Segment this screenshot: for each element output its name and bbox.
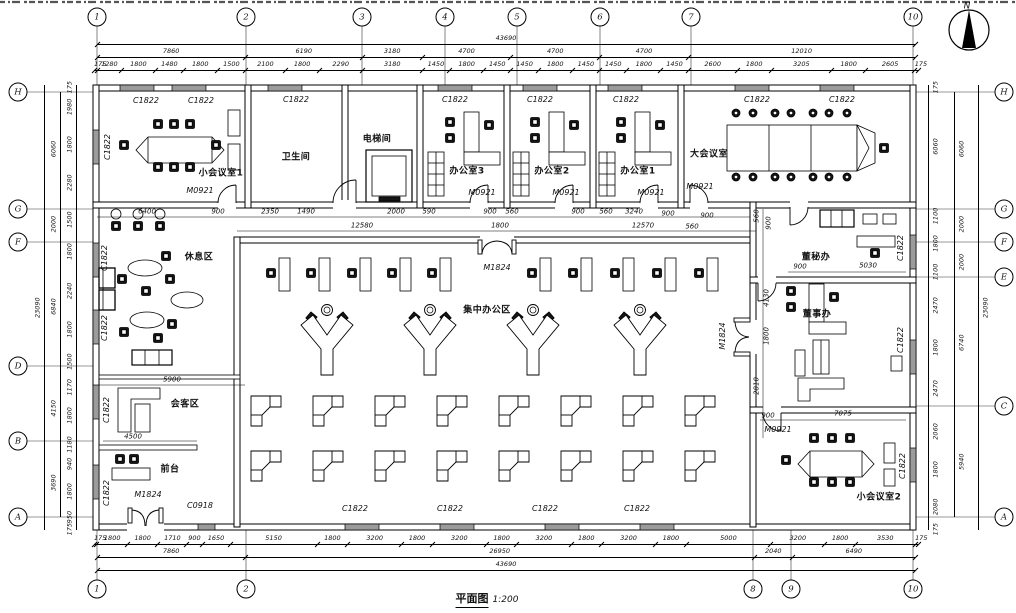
dim-chain-bottom-segments: 78602695020406490 xyxy=(97,547,915,558)
dim-value: 6190 xyxy=(245,47,362,57)
dim-value: 4700 xyxy=(422,47,511,57)
dim-value: 2100 xyxy=(246,60,286,70)
window-label-c1822: C1822 xyxy=(104,134,112,160)
dim-value: 1450 xyxy=(484,60,511,70)
door-label-m1824: M1824 xyxy=(719,322,727,349)
interior-dim: 560 xyxy=(599,209,612,216)
dim-value: 1800 xyxy=(127,534,157,544)
dim-value: 900 xyxy=(187,534,202,544)
dim-chain-bottom-total: 43690 xyxy=(97,560,915,571)
dim-value: 26950 xyxy=(245,547,754,557)
dim-value: 4150 xyxy=(47,370,60,448)
grid-bubble-right-E: E xyxy=(995,268,1014,287)
interior-dim: 4500 xyxy=(124,434,142,441)
dim-value: 43690 xyxy=(97,34,915,44)
grid-bubble-bottom-10: 10 xyxy=(904,580,923,599)
grid-bubble-right-F: F xyxy=(995,233,1014,252)
window-label-c1822: C1822 xyxy=(103,480,111,506)
door-label-m0921: M0921 xyxy=(764,426,791,434)
grid-bubble-bottom-1: 1 xyxy=(88,580,107,599)
dim-value: 1800 xyxy=(656,534,686,544)
dim-value: 1800 xyxy=(63,398,76,433)
interior-dim: 900 xyxy=(700,213,713,220)
dim-value: 6740 xyxy=(955,280,968,406)
dim-value: 2000 xyxy=(47,205,60,242)
window-label-c1822: C1822 xyxy=(899,453,907,479)
grid-bubble-right-A: A xyxy=(995,508,1014,527)
dim-value: 7860 xyxy=(97,547,245,557)
dim-value: 6060 xyxy=(47,92,60,205)
interior-dim: 2350 xyxy=(261,209,279,216)
dim-value: 5150 xyxy=(230,534,317,544)
room-label-meeting1: 小会议室1 xyxy=(199,170,244,179)
dim-value: 1800 xyxy=(317,534,347,544)
dim-value: 1280 xyxy=(97,60,121,70)
dim-chain-left-segments: 60602000684041503690 xyxy=(47,92,61,517)
dim-chain-left-total: 23090 xyxy=(31,85,45,530)
dim-value: 2000 xyxy=(955,243,968,280)
dim-chain-right-segments: 60602000200067405940 xyxy=(954,92,968,517)
window-label-c1822: C1822 xyxy=(133,97,159,105)
floor-plan-canvas: 1 2 3 4 5 6 7 10 1 2 8 9 10 H G F D B A … xyxy=(0,0,1016,613)
dim-value: 3200 xyxy=(517,534,571,544)
room-label-openoffice: 集中办公区 xyxy=(463,307,511,316)
dim-value: 2470 xyxy=(929,365,942,413)
north-arrow-icon xyxy=(949,10,989,50)
dim-value: 4700 xyxy=(600,47,689,57)
dim-value: 12010 xyxy=(688,47,915,57)
dim-value: 175 xyxy=(915,60,918,70)
dim-value: 1800 xyxy=(63,234,76,269)
dim-value: 23090 xyxy=(979,85,992,530)
interior-dim: 560 xyxy=(754,209,761,222)
grid-bubble-left-G: G xyxy=(9,200,28,219)
dim-value: 175 xyxy=(63,527,76,530)
grid-bubble-bottom-2: 2 xyxy=(237,580,256,599)
window-label-c1822: C1822 xyxy=(188,97,214,105)
drawing-title-text: 平面图 xyxy=(456,590,489,608)
door-label-m0921: M0921 xyxy=(552,189,579,197)
dim-value: 2290 xyxy=(319,60,362,70)
dim-value: 1180 xyxy=(63,433,76,456)
dim-value: 1800 xyxy=(929,330,942,365)
interior-dim: 5030 xyxy=(859,263,877,270)
interior-dim: 900 xyxy=(571,209,584,216)
dim-value: 7860 xyxy=(97,47,245,57)
dim-value: 940 xyxy=(63,455,76,473)
dim-value: 2000 xyxy=(955,205,968,242)
dim-value: 1800 xyxy=(571,534,601,544)
dim-value: 1800 xyxy=(285,60,319,70)
dim-value: 23090 xyxy=(31,85,44,530)
grid-bubble-top-3: 3 xyxy=(353,8,372,27)
dim-value: 1650 xyxy=(202,534,230,544)
dim-value: 5940 xyxy=(955,406,968,517)
interior-dim: 1800 xyxy=(491,223,509,230)
dim-value: 1500 xyxy=(63,347,76,376)
door-label-m0921: M0921 xyxy=(186,187,213,195)
grid-bubble-right-C: C xyxy=(995,397,1014,416)
dim-value: 3530 xyxy=(855,534,915,544)
dim-chain-top-segments: 78606190318047004700470012010 xyxy=(97,47,915,58)
dim-chain-right-detail: 1756060110018001100247018002470206018002… xyxy=(928,85,942,530)
window-label-c1822: C1822 xyxy=(342,505,368,513)
dim-value: 3200 xyxy=(602,534,656,544)
dim-value: 1800 xyxy=(183,60,217,70)
dim-value: 1710 xyxy=(158,534,187,544)
dim-value: 1500 xyxy=(217,60,245,70)
door-label-m1824: M1824 xyxy=(483,264,510,272)
window-label-c1822: C1822 xyxy=(101,315,109,341)
dim-value: 175 xyxy=(915,534,918,544)
dim-value: 2040 xyxy=(754,547,793,557)
room-label-rest: 休息区 xyxy=(185,254,214,263)
dim-value: 5000 xyxy=(686,534,771,544)
interior-dim: 590 xyxy=(422,209,435,216)
interior-dim: 900 xyxy=(766,216,773,229)
door-gaps xyxy=(127,200,808,531)
dim-value: 3200 xyxy=(432,534,486,544)
dim-value: 6490 xyxy=(793,547,916,557)
grid-bubble-right-H: H xyxy=(995,83,1014,102)
window-label-c1822: C1822 xyxy=(613,96,639,104)
dim-value: 2600 xyxy=(688,60,737,70)
interior-dim: 900 xyxy=(211,209,224,216)
dim-chain-top-total: 43690 xyxy=(97,34,915,45)
dim-value: 4700 xyxy=(511,47,600,57)
drawing-scale: 1:200 xyxy=(493,595,519,605)
window-label-c1822: C1822 xyxy=(527,96,553,104)
interior-dim: 560 xyxy=(505,209,518,216)
grid-bubble-bottom-8: 8 xyxy=(744,580,763,599)
grid-bubble-top-6: 6 xyxy=(591,8,610,27)
dim-value: 2060 xyxy=(929,412,942,452)
door-label-m1824: M1824 xyxy=(134,491,161,499)
dim-chain-bottom-detail: 1751800180017109001650515018003200180032… xyxy=(94,534,918,545)
room-label-elevator: 电梯间 xyxy=(363,136,392,145)
dim-value: 1800 xyxy=(121,60,155,70)
dim-value: 1800 xyxy=(832,60,866,70)
window-label-c1822: C1822 xyxy=(897,235,905,261)
dim-value: 1450 xyxy=(511,60,538,70)
interior-dim: 560 xyxy=(685,224,698,231)
dim-value: 43690 xyxy=(97,560,915,570)
grid-bubble-top-10: 10 xyxy=(904,8,923,27)
dim-value: 1100 xyxy=(929,205,942,226)
room-label-office1: 办公室1 xyxy=(620,168,655,177)
dim-value: 1800 xyxy=(825,534,855,544)
window-label-c1822: C1822 xyxy=(103,397,111,423)
dim-value: 6840 xyxy=(47,243,60,371)
interior-dim: 6400 xyxy=(138,209,156,216)
interior-dim: 1800 xyxy=(764,327,771,345)
dim-value: 1800 xyxy=(63,312,76,347)
dim-value: 1500 xyxy=(63,205,76,234)
window-label-c1822: C1822 xyxy=(283,96,309,104)
interior-dim: 900 xyxy=(761,413,774,420)
dim-value: 2605 xyxy=(866,60,915,70)
interior-dim: 1490 xyxy=(297,209,315,216)
dim-value: 2240 xyxy=(63,269,76,312)
dim-value: 1450 xyxy=(422,60,449,70)
interior-dim: 7075 xyxy=(834,411,852,418)
room-label-reception: 前台 xyxy=(160,466,179,475)
grid-bubble-left-F: F xyxy=(9,233,28,252)
door-label-m0921: M0921 xyxy=(686,183,713,191)
dim-value: 1800 xyxy=(538,60,572,70)
interior-dim: 12580 xyxy=(351,223,373,230)
window-label-c1822: C1822 xyxy=(442,96,468,104)
dim-value: 2280 xyxy=(63,161,76,205)
dim-value: 1800 xyxy=(627,60,661,70)
dim-value: 1800 xyxy=(737,60,771,70)
window-label-c1822: C1822 xyxy=(437,505,463,513)
grid-bubble-left-B: B xyxy=(9,432,28,451)
dim-value: 3180 xyxy=(362,60,422,70)
room-label-toilet: 卫生间 xyxy=(282,154,311,163)
window-label-c1822: C1822 xyxy=(532,505,558,513)
room-label-bigmeeting: 大会议室 xyxy=(690,151,728,160)
grid-bubble-top-5: 5 xyxy=(508,8,527,27)
door-label-m0921: M0921 xyxy=(637,189,664,197)
dim-value: 1800 xyxy=(486,534,516,544)
dim-value: 6060 xyxy=(955,92,968,205)
dim-value: 1450 xyxy=(600,60,627,70)
grid-bubble-bottom-9: 9 xyxy=(782,580,801,599)
window-label-c0918: C0918 xyxy=(187,502,213,510)
dim-chain-right-total: 23090 xyxy=(978,85,992,530)
window-label-c1822: C1822 xyxy=(101,245,109,271)
dim-value: 1170 xyxy=(63,376,76,399)
grid-bubble-left-H: H xyxy=(9,83,28,102)
interior-dim: 900 xyxy=(661,211,674,218)
window-label-c1822: C1822 xyxy=(829,96,855,104)
room-label-office3: 办公室3 xyxy=(449,168,484,177)
interior-dim: 900 xyxy=(483,209,496,216)
dim-value: 1100 xyxy=(929,261,942,282)
interior-dim: 2810 xyxy=(754,377,761,395)
door-label-m0921: M0921 xyxy=(468,189,495,197)
dim-value: 3200 xyxy=(771,534,825,544)
grid-bubble-top-7: 7 xyxy=(682,8,701,27)
dim-value: 175 xyxy=(929,527,942,530)
dim-value: 1800 xyxy=(97,534,127,544)
grid-bubble-top-1: 1 xyxy=(88,8,107,27)
dim-value: 1980 xyxy=(63,88,76,126)
dim-chain-left-detail: 1751980180022801500180022401800150011701… xyxy=(63,85,77,530)
dim-value: 3200 xyxy=(348,534,402,544)
dim-value: 1450 xyxy=(572,60,599,70)
dim-value: 2470 xyxy=(929,282,942,330)
dim-value: 1800 xyxy=(402,534,432,544)
dim-value: 1800 xyxy=(450,60,484,70)
dim-value: 1450 xyxy=(661,60,688,70)
interior-dim: 3240 xyxy=(625,209,643,216)
interior-dim: 5900 xyxy=(163,377,181,384)
grid-bubble-left-A: A xyxy=(9,508,28,527)
interior-dim: 900 xyxy=(793,264,806,271)
room-label-meeting2: 小会议室2 xyxy=(857,494,902,503)
dim-value: 1800 xyxy=(63,474,76,509)
dim-value: 1800 xyxy=(63,127,76,162)
dim-chain-top-detail: 1751280180014801800150021001800229031801… xyxy=(94,60,918,71)
dim-value: 2080 xyxy=(929,487,942,527)
dim-value: 1800 xyxy=(929,226,942,261)
grid-bubble-right-G: G xyxy=(995,200,1014,219)
window-label-c1822: C1822 xyxy=(624,505,650,513)
dim-value: 6060 xyxy=(929,88,942,205)
room-label-secretary: 董秘办 xyxy=(802,254,831,263)
dim-value: 3690 xyxy=(47,448,60,517)
interior-dim: 12570 xyxy=(632,223,654,230)
doors xyxy=(128,180,808,526)
dim-value: 3205 xyxy=(771,60,831,70)
window-label-c1822: C1822 xyxy=(897,327,905,353)
dim-value: 1480 xyxy=(155,60,183,70)
interior-dim: 4130 xyxy=(764,289,771,307)
room-label-guest: 会客区 xyxy=(171,401,200,410)
dim-value: 1800 xyxy=(929,452,942,487)
interior-dim: 2000 xyxy=(387,209,405,216)
room-label-office2: 办公室2 xyxy=(534,168,569,177)
dim-value: 3180 xyxy=(362,47,422,57)
drawing-title: 平面图 1:200 xyxy=(456,590,519,608)
room-label-director: 董事办 xyxy=(803,311,832,320)
north-label: N xyxy=(964,3,971,12)
grid-bubble-left-D: D xyxy=(9,357,28,376)
grid-bubble-top-2: 2 xyxy=(237,8,256,27)
window-label-c1822: C1822 xyxy=(744,96,770,104)
grid-bubble-top-4: 4 xyxy=(436,8,455,27)
